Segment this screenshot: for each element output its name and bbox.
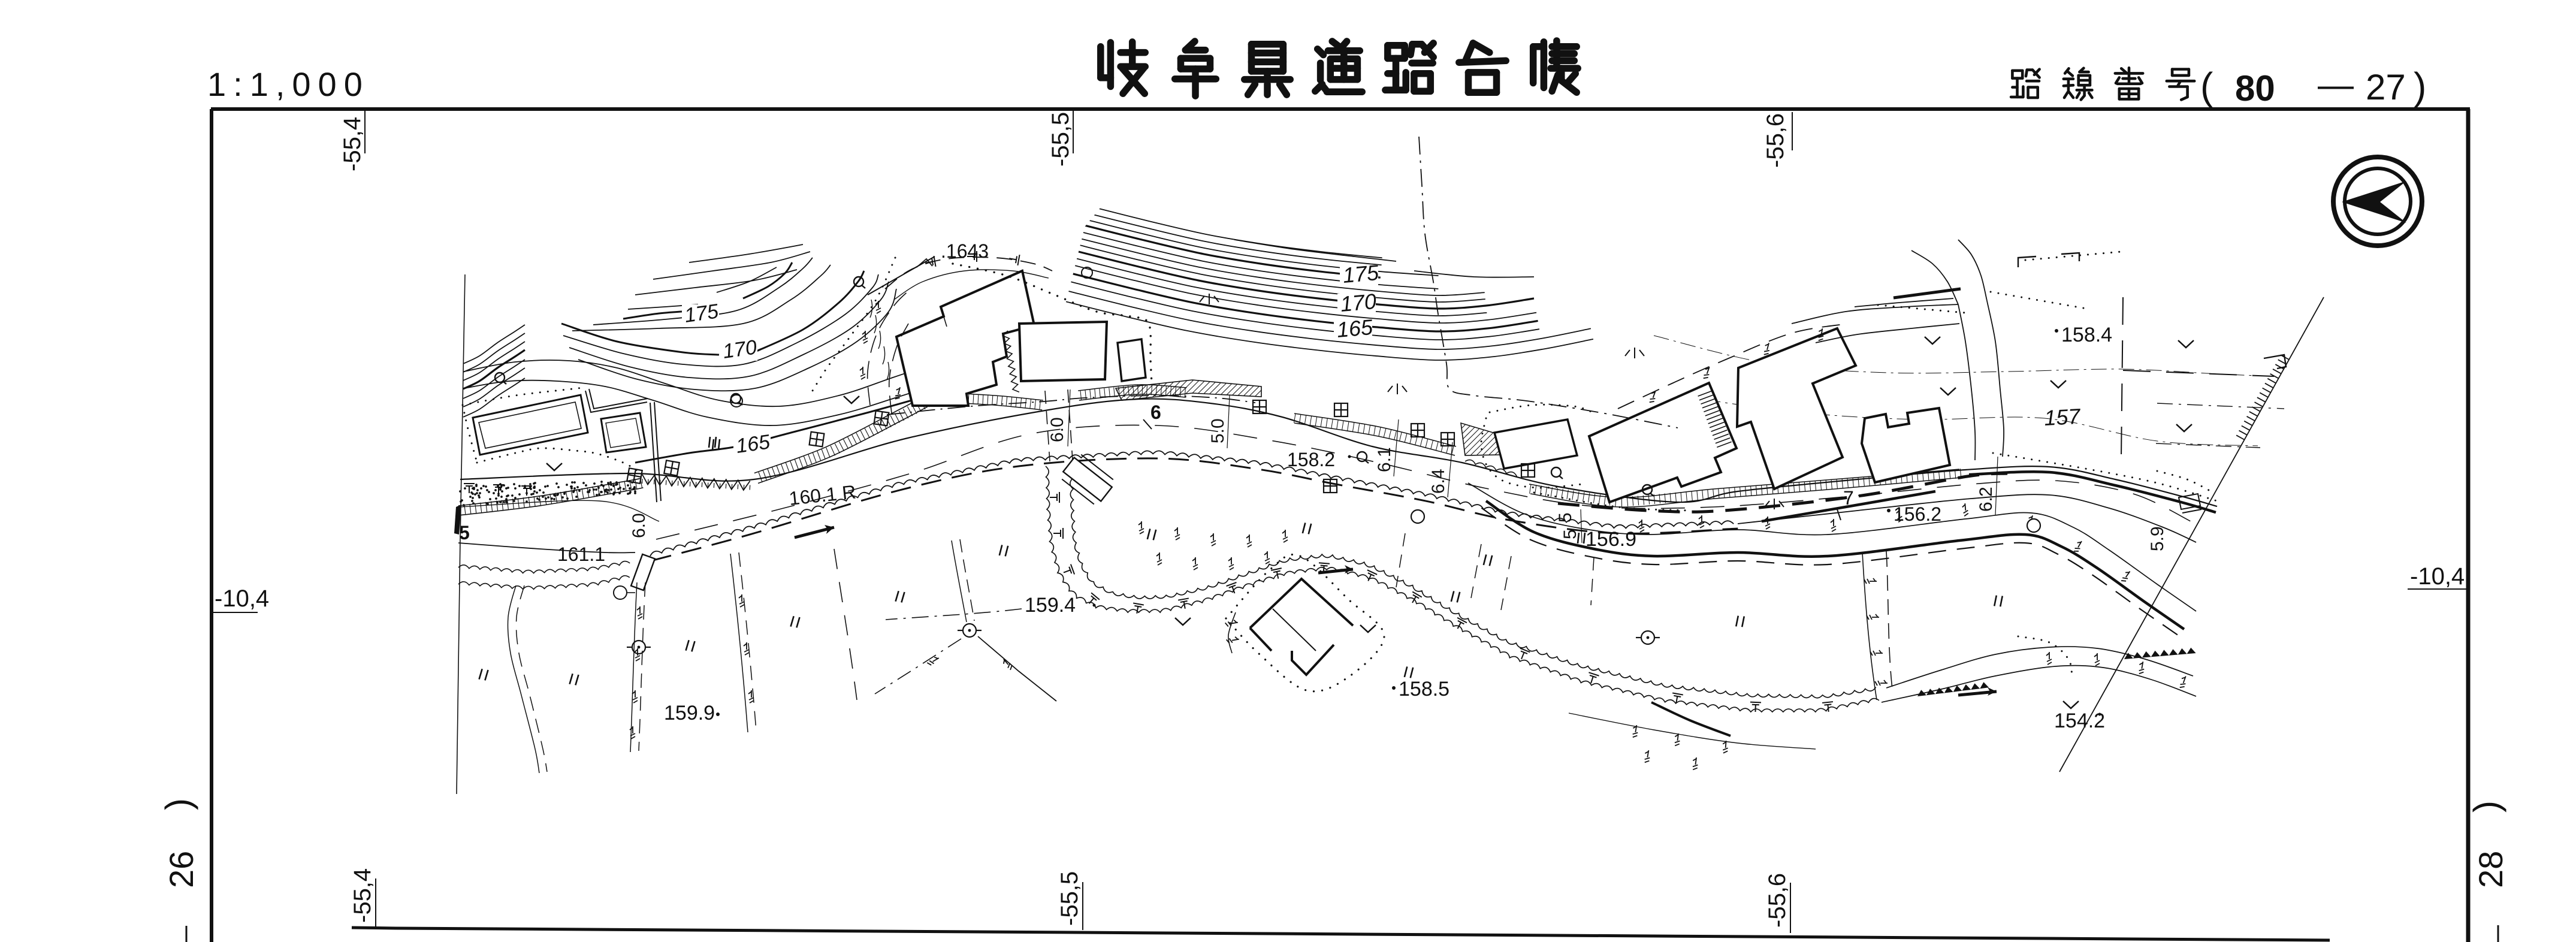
svg-text:-55,5: -55,5 bbox=[1047, 112, 1074, 167]
svg-text:): ) bbox=[158, 798, 198, 810]
svg-text:6.1: 6.1 bbox=[1375, 447, 1394, 472]
svg-text:-10,4: -10,4 bbox=[215, 585, 269, 612]
svg-text:6.4: 6.4 bbox=[1429, 469, 1448, 494]
svg-text:157: 157 bbox=[2043, 404, 2082, 430]
svg-text:): ) bbox=[2414, 65, 2426, 108]
svg-text:6.0: 6.0 bbox=[1047, 417, 1067, 442]
svg-text:156.9: 156.9 bbox=[1586, 528, 1636, 551]
svg-text:170: 170 bbox=[721, 336, 759, 363]
svg-text:-55,6: -55,6 bbox=[1762, 113, 1789, 168]
svg-text:158.5: 158.5 bbox=[1399, 678, 1449, 701]
svg-text:6: 6 bbox=[1150, 401, 1161, 423]
svg-text:154.2: 154.2 bbox=[2054, 709, 2105, 732]
svg-text:-55,5: -55,5 bbox=[1056, 871, 1083, 926]
svg-text:1:1,000: 1:1,000 bbox=[207, 65, 370, 103]
svg-text:5: 5 bbox=[1560, 529, 1580, 539]
svg-text:159.4: 159.4 bbox=[1025, 594, 1076, 617]
svg-text:5: 5 bbox=[459, 522, 470, 544]
svg-text:(: ( bbox=[2200, 65, 2213, 108]
svg-text:5: 5 bbox=[1556, 512, 1575, 523]
svg-text:5.0: 5.0 bbox=[1208, 418, 1228, 443]
svg-text:-55,4: -55,4 bbox=[339, 117, 366, 171]
svg-text:175: 175 bbox=[1342, 260, 1380, 288]
svg-text:): ) bbox=[2466, 801, 2506, 813]
svg-text:165: 165 bbox=[735, 430, 772, 458]
svg-text:161.1: 161.1 bbox=[557, 544, 605, 565]
svg-text:28: 28 bbox=[2472, 851, 2509, 888]
svg-text:159.9: 159.9 bbox=[664, 702, 715, 724]
svg-text:26: 26 bbox=[162, 851, 200, 888]
svg-text:170: 170 bbox=[1339, 289, 1377, 316]
svg-text:-55,6: -55,6 bbox=[1764, 873, 1790, 928]
svg-text:80: 80 bbox=[2235, 68, 2275, 108]
svg-text:—: — bbox=[2318, 65, 2354, 105]
svg-text:-55,4: -55,4 bbox=[349, 868, 376, 923]
svg-text:165: 165 bbox=[1336, 315, 1374, 342]
svg-text:175: 175 bbox=[683, 300, 720, 327]
svg-text:-10,4: -10,4 bbox=[2410, 563, 2465, 590]
svg-text:.1643: .1643 bbox=[941, 240, 989, 262]
svg-text:156.2: 156.2 bbox=[1894, 503, 1941, 525]
svg-text:6.0: 6.0 bbox=[629, 513, 649, 538]
svg-text:27: 27 bbox=[2366, 67, 2406, 107]
svg-text:158.2: 158.2 bbox=[1287, 449, 1335, 470]
svg-text:6.2: 6.2 bbox=[1976, 487, 1996, 512]
svg-text:5.9: 5.9 bbox=[2148, 526, 2167, 551]
svg-text:158.4: 158.4 bbox=[2061, 324, 2112, 346]
